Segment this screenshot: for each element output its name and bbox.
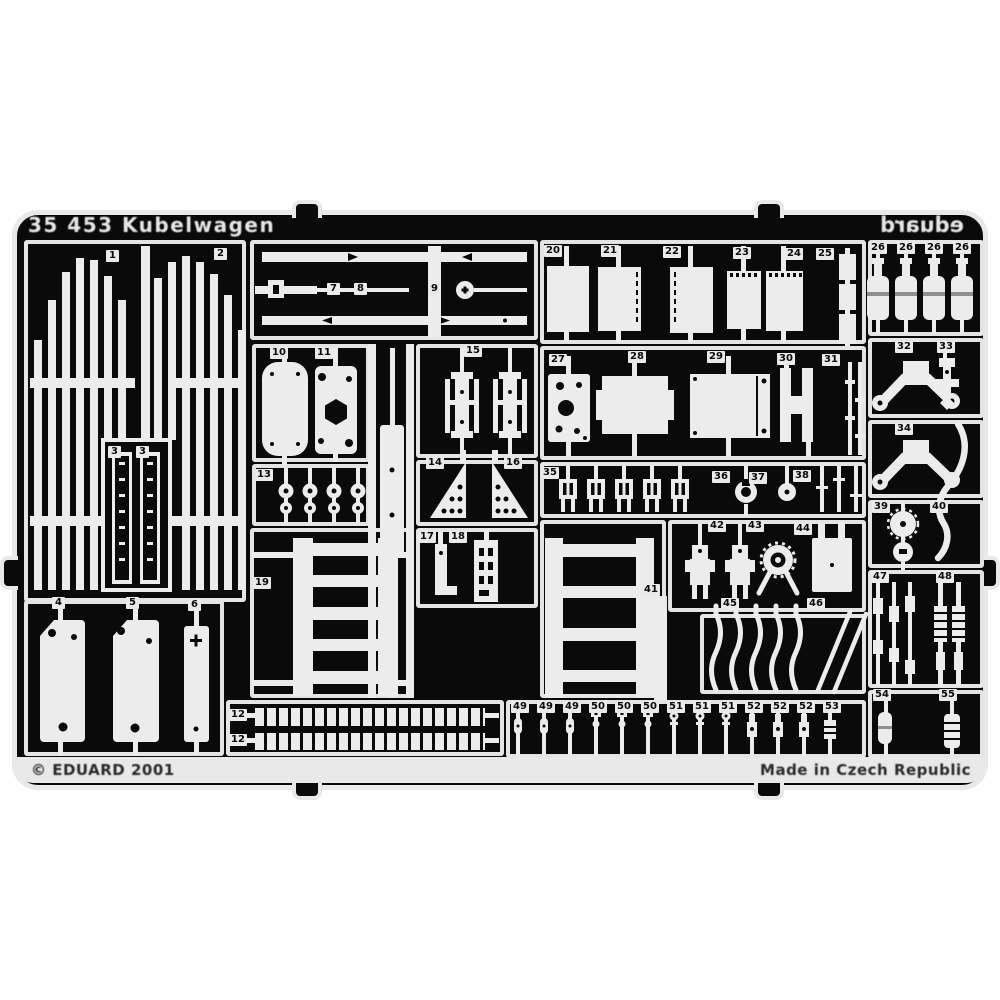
part-28-panel — [596, 356, 674, 456]
part-12-center-channel — [368, 344, 414, 698]
part-14-gusset — [430, 450, 466, 518]
part-16-gusset — [492, 450, 528, 518]
steering-boss-gear — [759, 543, 797, 593]
part-39-toothed-discs — [888, 502, 918, 570]
ladder-frame-2 — [545, 538, 654, 698]
part-36-c-ring — [735, 466, 757, 516]
part-18-slotted-strip — [474, 530, 498, 602]
part-37-disc — [778, 466, 796, 501]
part-41-bar — [654, 596, 667, 700]
part-40-curved-strip — [938, 424, 965, 558]
fret-set-number-title: 35 453 Kubelwagen — [28, 213, 275, 237]
bottom-frame-bar: © EDUARD 2001 Made in Czech Republic — [17, 757, 983, 783]
parts-49-53-small-levers — [514, 710, 836, 758]
part-12-tread-strip — [255, 733, 485, 750]
part-15-spools — [445, 348, 527, 456]
copyright-text: © EDUARD 2001 — [31, 761, 175, 779]
part-44-box — [812, 522, 852, 592]
part-10-plate — [262, 346, 308, 466]
parts-42-43-shock-absorbers — [685, 524, 755, 599]
part-45-wavy-strips — [712, 606, 801, 690]
part-6-panel — [184, 606, 209, 754]
parts-20-25-panels — [547, 246, 856, 346]
part-29-panel — [690, 356, 770, 456]
part-31-rods — [845, 362, 865, 455]
eduard-logo-mirrored: eduard — [872, 213, 972, 237]
part-3-dial-strips — [103, 440, 170, 590]
part-30-h-bracket — [780, 356, 813, 456]
part-38-rods — [816, 466, 862, 512]
part-46-rods — [818, 612, 866, 692]
part-17-bracket — [435, 532, 457, 595]
part-54-capsule-rod — [878, 694, 892, 758]
part-55-capsule-rod — [944, 694, 960, 758]
part-26-bottles — [867, 244, 973, 334]
part-13-small-discs — [279, 468, 366, 522]
photo-etch-fret-photo: 35 453 Kubelwagen eduard © EDUARD 2001 M… — [0, 0, 1000, 1000]
part-27-dash-plate — [548, 356, 590, 456]
part-48-rod-cluster — [934, 582, 965, 686]
etched-parts-artwork — [0, 0, 1000, 1000]
part-11-plate-hex-hole — [315, 348, 357, 462]
part-4-panel — [40, 604, 85, 756]
part-47-rod-cluster — [873, 582, 915, 686]
made-in-text: Made in Czech Republic — [760, 761, 971, 779]
part-35-clamps — [559, 466, 689, 512]
part-5-panel — [113, 604, 159, 756]
part-12-tread-strip — [255, 708, 485, 726]
parts-7-8-9-strips — [255, 246, 527, 338]
part-19-ladder-frame — [252, 538, 414, 696]
